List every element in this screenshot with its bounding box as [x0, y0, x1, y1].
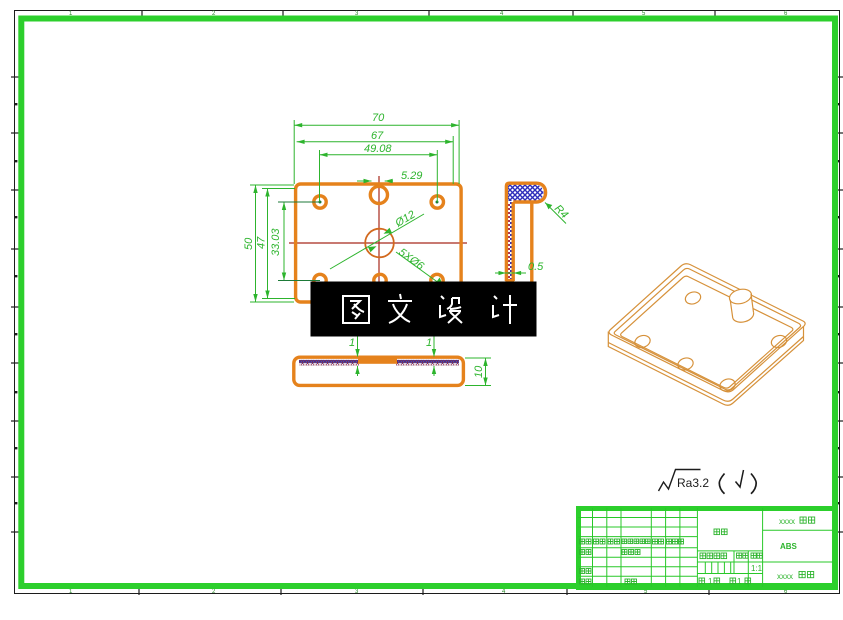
svg-text:49.08: 49.08	[364, 143, 392, 155]
svg-text:33.03: 33.03	[270, 228, 282, 256]
svg-text:10: 10	[473, 365, 485, 378]
svg-text:5.29: 5.29	[401, 170, 422, 182]
svg-text:1:1: 1:1	[751, 564, 763, 573]
svg-text:0.5: 0.5	[528, 261, 544, 273]
svg-text:50: 50	[243, 237, 255, 250]
svg-text:1: 1	[737, 577, 742, 586]
svg-text:xxxx: xxxx	[777, 572, 793, 581]
svg-text:1: 1	[708, 577, 713, 586]
svg-text:xxxx: xxxx	[779, 517, 795, 526]
svg-text:Ra3.2: Ra3.2	[677, 476, 709, 490]
svg-text:1: 1	[426, 337, 432, 349]
svg-text:1: 1	[349, 337, 355, 349]
svg-text:47: 47	[256, 236, 268, 249]
svg-text:70: 70	[372, 112, 385, 124]
svg-text:67: 67	[371, 130, 384, 142]
svg-text:ABS: ABS	[780, 542, 798, 551]
